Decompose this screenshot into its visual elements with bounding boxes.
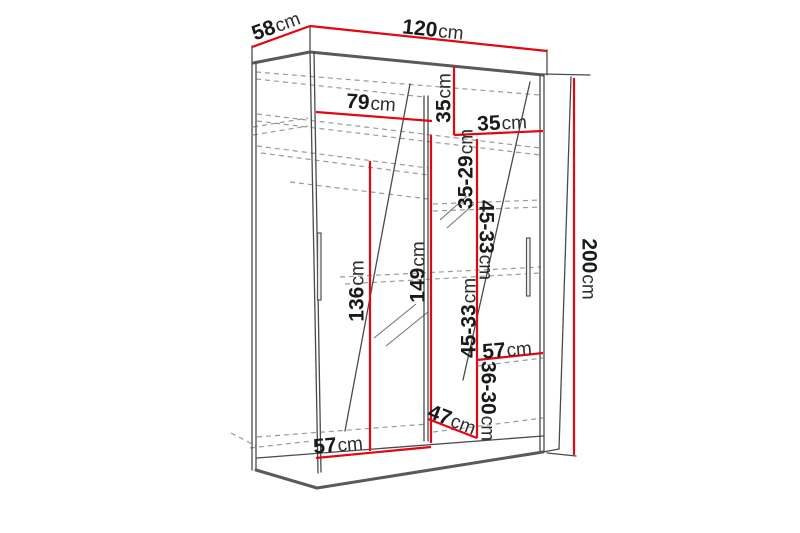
dimension-lines	[252, 26, 574, 458]
wardrobe-carcass-outline	[252, 26, 590, 488]
dim-line-bottom-depth-47	[428, 419, 477, 438]
mirror-reflection-lines	[345, 82, 530, 431]
interior-dashed-lines	[231, 72, 543, 448]
right-door-handle	[527, 238, 531, 296]
dim-line-right-width-35	[454, 131, 543, 135]
plinth	[256, 436, 576, 488]
wardrobe-line-art	[0, 0, 800, 533]
dim-line-left-width-79	[316, 112, 432, 121]
dim-line-width-120	[310, 26, 547, 51]
left-door-handle	[318, 233, 322, 300]
wardrobe-dimension-diagram: 58cm 120cm 79cm 35cm 35cm 35-29cm 45-33c…	[0, 0, 800, 533]
dim-line-depth-58	[252, 26, 310, 47]
